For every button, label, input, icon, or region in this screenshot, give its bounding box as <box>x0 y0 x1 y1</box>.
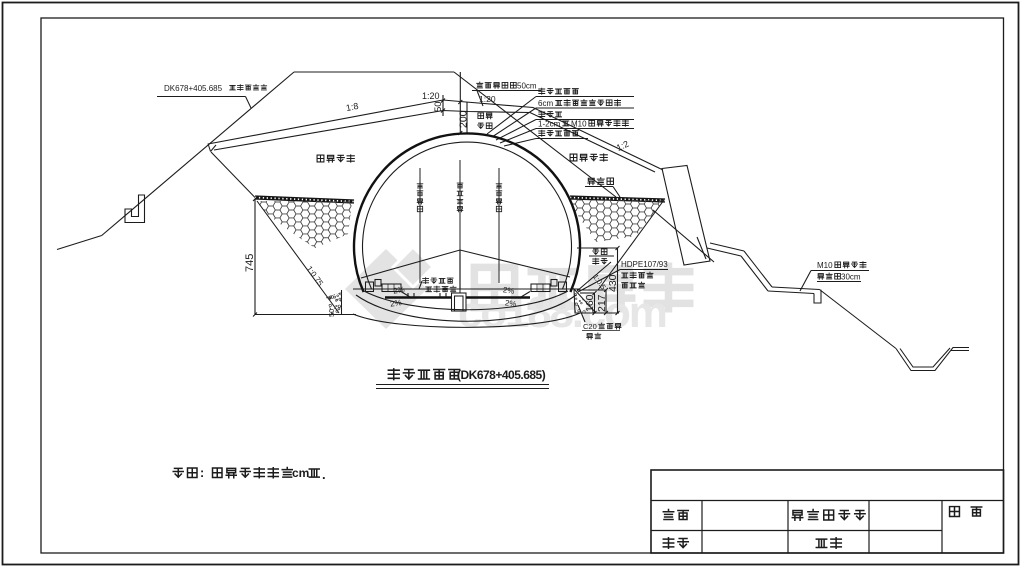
svg-text:430: 430 <box>607 274 619 292</box>
svg-text:6cm: 6cm <box>538 99 553 108</box>
svg-text:M10: M10 <box>817 261 833 270</box>
svg-text:30cm: 30cm <box>841 273 861 282</box>
svg-text:50: 50 <box>327 309 336 317</box>
svg-text:HDPE107/93: HDPE107/93 <box>621 260 668 269</box>
svg-text:M10: M10 <box>571 120 587 129</box>
svg-text:2%: 2% <box>392 285 405 296</box>
svg-text:200: 200 <box>458 110 470 128</box>
svg-text:50cm: 50cm <box>517 82 537 91</box>
svg-text:C20: C20 <box>583 322 597 331</box>
svg-text:160: 160 <box>584 294 596 312</box>
svg-text:745: 745 <box>244 254 256 272</box>
svg-text::: : <box>200 466 204 480</box>
svg-text:(DK678+405.685): (DK678+405.685) <box>457 368 546 382</box>
svg-text:217: 217 <box>596 294 608 312</box>
svg-text:2%: 2% <box>502 285 515 296</box>
svg-text:1:20: 1:20 <box>422 91 440 101</box>
svg-text:cm: cm <box>292 466 309 480</box>
svg-text:co188.com: co188.com <box>458 288 666 337</box>
svg-text:1-2cm: 1-2cm <box>538 120 561 129</box>
svg-text:DK678+405.685: DK678+405.685 <box>164 84 223 93</box>
svg-text:50: 50 <box>433 101 444 112</box>
svg-text:.: . <box>322 467 326 482</box>
